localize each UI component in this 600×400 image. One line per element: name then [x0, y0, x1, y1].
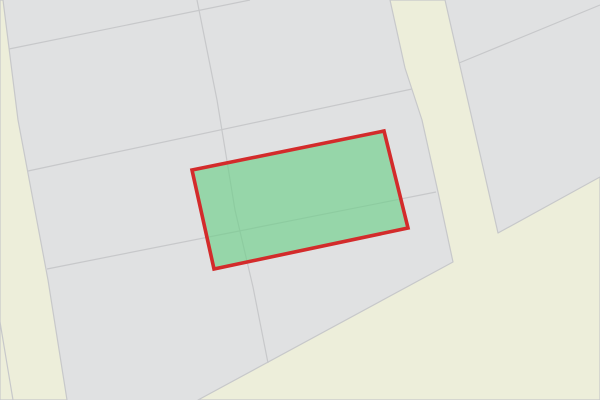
map-viewport[interactable]: [0, 0, 600, 400]
map-canvas[interactable]: [0, 0, 600, 400]
